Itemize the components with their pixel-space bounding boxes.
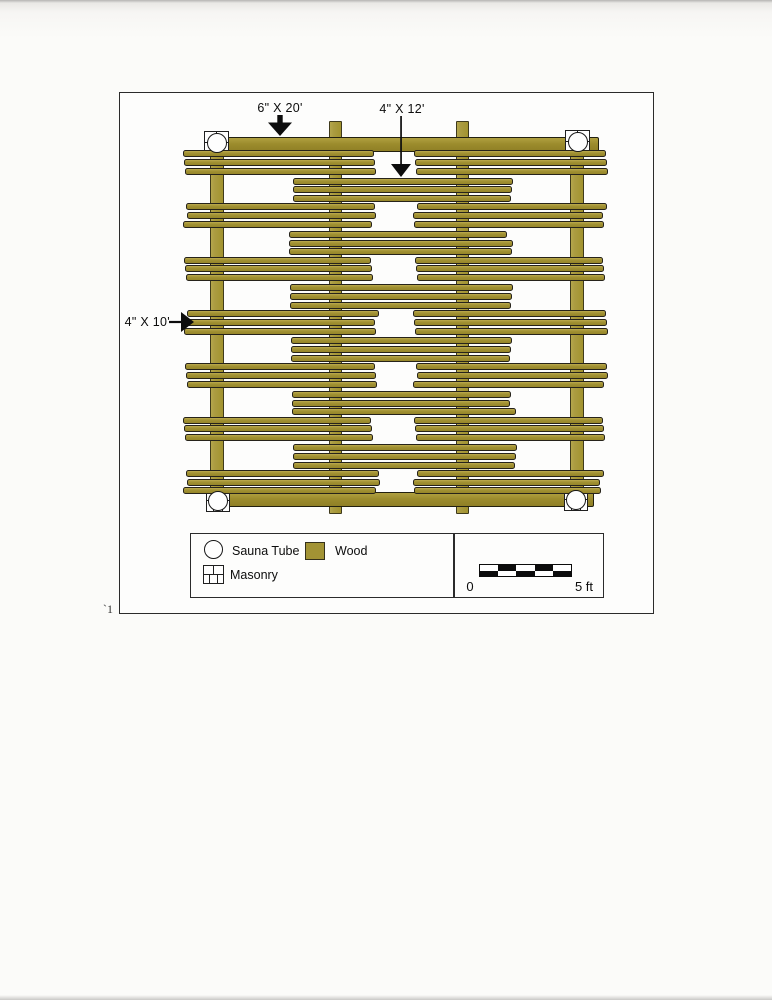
wood-plank — [416, 363, 607, 370]
wood-plank — [186, 470, 379, 477]
wood-plank — [292, 400, 510, 407]
wood-plank — [186, 274, 373, 281]
wood-plank — [416, 434, 605, 441]
wood-plank — [417, 203, 607, 210]
wood-plank — [183, 221, 372, 228]
center-plank-label: 4" X 12' — [357, 102, 447, 116]
legend-label-wood: Wood — [335, 544, 367, 558]
wood-plank — [293, 462, 515, 469]
legend-box: Sauna Tube Wood Masonry 0 5 ft — [190, 533, 604, 598]
legend-label-sauna-tube: Sauna Tube — [232, 544, 299, 558]
wood-plank — [414, 319, 607, 326]
sauna-tube — [208, 491, 228, 511]
wood-plank — [290, 293, 512, 300]
wood-plank — [291, 337, 512, 344]
wood-plank — [415, 425, 604, 432]
scan-shadow-top — [0, 0, 772, 38]
scanned-page: 6" X 20' 4" X 12' 4" X 10' Sauna Tube Wo… — [0, 0, 772, 1000]
wood-plank — [187, 310, 379, 317]
wood-plank — [185, 265, 372, 272]
scale-segment — [516, 571, 534, 577]
right-arrow-icon — [169, 310, 195, 334]
wood-plank — [184, 425, 372, 432]
wood-plank — [290, 302, 511, 309]
wood-plank — [415, 159, 607, 166]
wood-plank — [415, 257, 603, 264]
sauna-tube — [568, 132, 588, 152]
wood-plank — [184, 257, 371, 264]
wood-plank — [186, 372, 376, 379]
scale-segment — [498, 571, 516, 577]
down-arrow-icon — [265, 115, 295, 137]
wood-plank — [187, 479, 380, 486]
wood-plank — [414, 221, 604, 228]
wood-plank — [187, 381, 377, 388]
side-plank-label: 4" X 10' — [124, 315, 170, 329]
wood-plank — [184, 328, 376, 335]
wood-plank — [289, 240, 513, 247]
wood-plank — [289, 231, 507, 238]
wood-plank — [413, 479, 600, 486]
legend-divider — [453, 534, 455, 597]
legend-label-masonry: Masonry — [230, 568, 278, 582]
wood-plank — [186, 203, 375, 210]
wood-plank — [292, 391, 511, 398]
top-beam-label: 6" X 20' — [235, 101, 325, 115]
scale-segment — [480, 571, 498, 577]
figure-frame: 6" X 20' 4" X 12' 4" X 10' Sauna Tube Wo… — [119, 92, 654, 614]
wood-plank — [183, 319, 375, 326]
wood-plank — [413, 212, 603, 219]
wood-plank — [413, 310, 606, 317]
wood-plank — [185, 434, 373, 441]
wood-plank — [293, 178, 513, 185]
scale-bar — [479, 564, 572, 577]
wood-plank — [185, 168, 376, 175]
wood-plank — [417, 470, 604, 477]
page-number-mark: `1 — [103, 602, 113, 617]
wood-plank — [293, 186, 512, 193]
scan-shadow-bottom — [0, 995, 772, 1000]
support-beam — [208, 492, 594, 507]
wood-plank — [185, 363, 375, 370]
wood-plank — [414, 417, 603, 424]
sauna-tube — [566, 490, 586, 510]
wood-plank — [416, 168, 608, 175]
scale-segment — [553, 571, 571, 577]
wood-plank — [293, 453, 516, 460]
wood-plank — [417, 274, 605, 281]
wood-plank — [413, 381, 604, 388]
wood-plank — [416, 265, 604, 272]
wood-plank — [415, 328, 608, 335]
wood-swatch-icon — [305, 542, 325, 560]
wood-plank — [289, 248, 512, 255]
wood-plank — [417, 372, 608, 379]
scale-end-label: 5 ft — [575, 579, 593, 594]
wood-plank — [183, 417, 371, 424]
wood-plank — [293, 195, 511, 202]
sauna-tube-icon — [204, 540, 223, 559]
long-down-arrow-icon — [390, 116, 412, 178]
wood-plank — [291, 355, 510, 362]
scale-zero-label: 0 — [466, 579, 473, 594]
wood-plank — [187, 212, 376, 219]
sauna-tube — [207, 133, 227, 153]
wood-plank — [292, 408, 516, 415]
masonry-icon — [203, 565, 224, 584]
scale-segment — [535, 571, 553, 577]
wood-plank — [291, 346, 511, 353]
wood-plank — [293, 444, 517, 451]
wood-plank — [290, 284, 513, 291]
wood-plank — [184, 159, 375, 166]
